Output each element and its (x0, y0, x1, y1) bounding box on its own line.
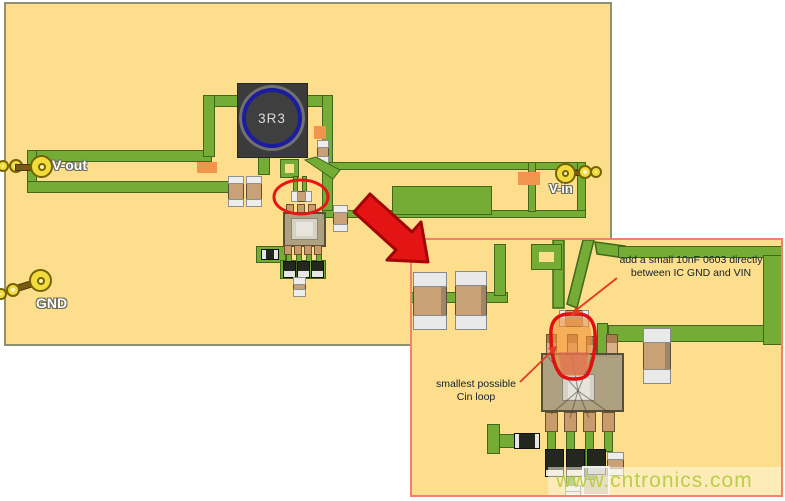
ic-bottom-pad-1 (284, 245, 292, 255)
trace-inductor-left-riser (203, 95, 215, 157)
small-capacitor-left (261, 249, 279, 260)
ic-bottom-pad-3 (304, 245, 312, 255)
inset-border (410, 238, 783, 497)
small-capacitor-dark-1 (283, 261, 296, 278)
converter-ic-die (296, 222, 313, 236)
capacitor-below-ic (293, 277, 306, 297)
trace-vout-loop-bottom (27, 181, 238, 193)
vin-label: V-in (549, 181, 573, 196)
paste-pad-vout (197, 162, 217, 173)
input-capacitor (333, 205, 348, 232)
capacitor-riser (317, 140, 329, 164)
paste-pad-vin (518, 172, 540, 185)
gnd-label: GND (36, 295, 67, 311)
gnd-pad (29, 269, 52, 292)
copper-pour-input (392, 186, 492, 215)
zoom-inset-panel: add a small 10nF 0603 directly between I… (410, 238, 783, 497)
output-capacitor-2 (246, 176, 262, 207)
vout-label: V-out (52, 157, 87, 173)
gnd-connector-ring-inner (6, 283, 20, 297)
trace-input-loop-divider (528, 162, 536, 212)
trace-input-loop-top (322, 162, 583, 170)
vout-pad (30, 155, 53, 178)
paste-pad-inductor-right (314, 126, 326, 139)
small-capacitor-dark-3 (311, 261, 324, 278)
vin-connector-ring-outer (590, 166, 602, 178)
ic-bottom-pad-4 (314, 245, 322, 255)
small-capacitor-dark-2 (297, 261, 310, 278)
pcb-layout-figure: 3R3 V-out GND V-in (0, 0, 785, 501)
cin-10nf-capacitor (291, 191, 312, 202)
output-capacitor-1 (228, 176, 244, 207)
ic-bottom-pad-2 (294, 245, 302, 255)
inductor-value-label: 3R3 (239, 85, 305, 151)
trace-under-inductor (258, 157, 270, 175)
